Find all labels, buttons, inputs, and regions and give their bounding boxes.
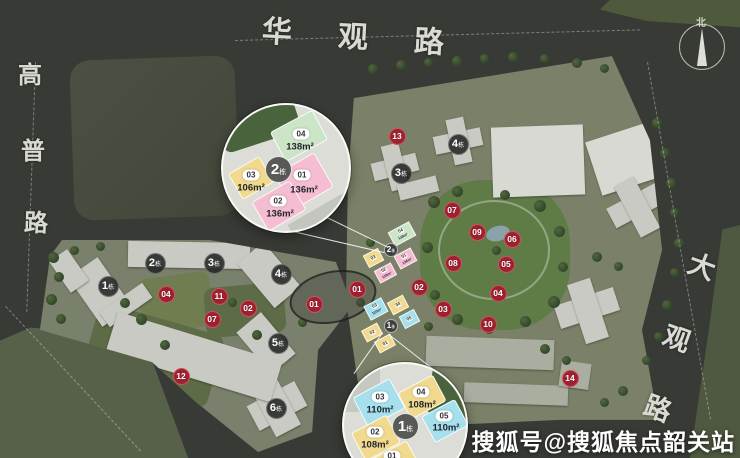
tree: [396, 60, 406, 70]
unit-marker-13: 13: [389, 128, 406, 145]
unit-number-pill: 05: [436, 411, 453, 422]
tree: [540, 344, 550, 354]
unit-marker-07: 07: [444, 202, 461, 219]
tree: [120, 298, 130, 308]
tree: [592, 252, 602, 262]
building-shape: [491, 124, 585, 197]
building-suffix: 栋: [108, 285, 114, 291]
unit-area-label: 106m²: [237, 183, 264, 194]
magnifier-building-2: 04138m²03106m²01136m²02136m² 2 栋: [221, 103, 351, 233]
unit-area-label: 136m²: [266, 209, 293, 220]
unit-marker-14: 14: [562, 370, 579, 387]
building-badge-3: 3栋: [391, 163, 412, 184]
building-badge-4: 4栋: [448, 134, 469, 155]
road-label-right: 观: [659, 322, 694, 357]
tree: [492, 246, 501, 255]
tree: [670, 268, 679, 277]
unit-marker-06: 06: [504, 231, 521, 248]
unit-marker-11: 11: [211, 288, 228, 305]
tree: [572, 58, 582, 68]
building-badge-1: 1栋: [98, 276, 119, 297]
unit-number-pill: 01: [384, 451, 401, 458]
tree: [428, 196, 440, 208]
building-suffix: 栋: [406, 426, 413, 433]
building-suffix: 栋: [276, 407, 282, 413]
building-suffix: 栋: [401, 172, 407, 178]
unit-number-pill: 02: [367, 427, 384, 438]
tree: [424, 58, 433, 67]
unit-marker-09: 09: [469, 224, 486, 241]
tree: [500, 190, 510, 200]
tree: [480, 54, 489, 63]
tree: [642, 356, 651, 365]
building-suffix: 栋: [458, 143, 464, 149]
mini-unit-number: 05: [406, 315, 414, 322]
building-badge-4: 4栋: [271, 264, 292, 285]
unit-area-label: 108m²: [408, 400, 435, 411]
tree: [228, 298, 237, 307]
building-badge-2: 2栋: [145, 253, 166, 274]
tree: [562, 356, 571, 365]
tree: [96, 242, 105, 251]
tree: [46, 294, 57, 305]
building-badge-6: 6栋: [266, 398, 287, 419]
unit-marker-05: 05: [498, 256, 515, 273]
unit-marker-04: 04: [490, 285, 507, 302]
building-suffix: 栋: [391, 249, 395, 253]
tree: [252, 330, 262, 340]
unit-marker-02: 02: [240, 300, 257, 317]
tree: [452, 314, 463, 325]
tree: [70, 246, 79, 255]
building-badge-5: 5栋: [268, 333, 289, 354]
tree: [368, 64, 378, 74]
mini-unit-number: 02: [368, 329, 376, 336]
tree: [452, 56, 462, 66]
unit-number-pill: 03: [372, 392, 389, 403]
building-suffix: 栋: [279, 169, 286, 176]
unit-area-label: 108m²: [361, 440, 388, 451]
tree: [136, 314, 147, 325]
unit-marker-01: 01: [349, 281, 366, 298]
tree: [54, 272, 64, 282]
site-plan-map: 04138m²03106m²01136m²02136m² 2 栋 03110m²…: [0, 0, 740, 458]
tree: [424, 322, 433, 331]
magnifier-building-1: 03110m²04108m²05110m²02108m²01 1 栋: [342, 362, 468, 458]
unit-marker-02: 02: [411, 279, 428, 296]
unit-number-pill: 01: [294, 170, 311, 181]
building-badge-3: 3栋: [204, 253, 225, 274]
unit-area-label: 110m²: [367, 405, 394, 416]
building-shape: [464, 382, 569, 406]
unit-area-label: 138m²: [286, 142, 313, 153]
road-label-top: 观: [337, 22, 369, 54]
compass: 北: [676, 14, 732, 72]
building-2-badge: 2 栋: [265, 156, 292, 183]
tree: [558, 262, 568, 272]
building-suffix: 栋: [281, 273, 287, 279]
unit-marker-04: 04: [158, 286, 175, 303]
watermark: 搜狐号@搜狐焦点韶关站: [472, 423, 735, 457]
building-1-badge: 1 栋: [392, 413, 419, 440]
road-label-top: 华: [261, 17, 293, 49]
unit-number-pill: 04: [293, 129, 310, 140]
building-suffix: 栋: [278, 342, 284, 348]
compass-needle-icon: [697, 28, 707, 66]
tree: [618, 386, 628, 396]
tree: [452, 186, 463, 197]
vacant-lot: [69, 55, 239, 221]
unit-marker-08: 08: [445, 255, 462, 272]
building-suffix: 栋: [214, 262, 220, 268]
unit-area-label: 136m²: [290, 185, 317, 196]
road-label-left: 高: [18, 64, 42, 88]
unit-marker-03: 03: [435, 301, 452, 318]
building-suffix: 栋: [391, 325, 395, 329]
tree: [554, 226, 565, 237]
tree: [160, 340, 170, 350]
tree: [520, 316, 531, 327]
tree: [548, 296, 560, 308]
tree: [614, 262, 623, 271]
unit-marker-12: 12: [173, 368, 190, 385]
tree: [422, 242, 433, 253]
road-centerline: [26, 62, 36, 312]
unit-marker-01: 01: [306, 296, 323, 313]
mini-unit-number: 04: [394, 301, 402, 308]
tree: [56, 314, 66, 324]
unit-area-label: 110m²: [433, 423, 460, 434]
unit-number-pill: 02: [270, 196, 287, 207]
tree: [430, 290, 440, 300]
mini-building-badge-1: 1栋: [384, 319, 398, 333]
tree: [540, 54, 549, 63]
tree: [662, 300, 672, 310]
unit-number-pill: 03: [243, 170, 260, 181]
mini-unit-number: 03: [370, 254, 378, 261]
building-suffix: 栋: [155, 262, 161, 268]
tree: [508, 52, 518, 62]
tree: [48, 252, 59, 263]
mini-unit-number: 01: [381, 340, 389, 347]
road-label-left: 路: [24, 212, 49, 237]
road-label-left: 普: [21, 140, 45, 164]
road-label-right: 大: [684, 250, 719, 285]
unit-marker-10: 10: [480, 316, 497, 333]
tree: [600, 398, 609, 407]
road-label-top: 路: [413, 27, 445, 59]
building-number: 1: [398, 419, 406, 434]
building-number: 2: [271, 162, 279, 177]
unit-marker-07: 07: [204, 311, 221, 328]
unit-number-pill: 04: [413, 387, 430, 398]
tree: [534, 200, 546, 212]
tree: [600, 64, 609, 73]
